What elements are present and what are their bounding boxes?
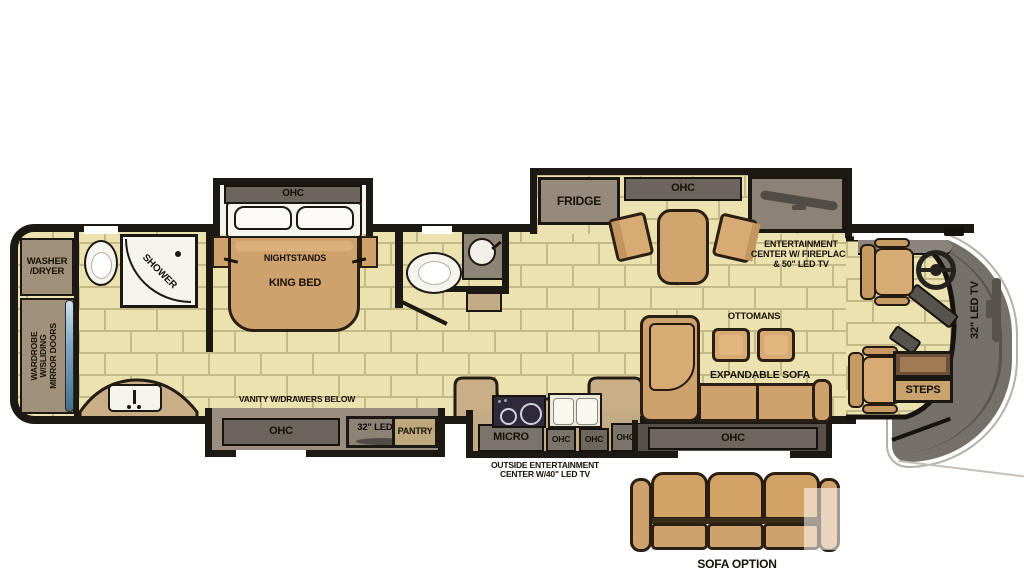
pantry: PANTRY <box>392 416 438 448</box>
sink-basin-right <box>576 398 598 425</box>
ohc-dinette-label: OHC <box>671 183 695 195</box>
front-tv-icon <box>992 278 1001 342</box>
ohc-sofa: OHC <box>648 427 818 450</box>
sofa-option <box>630 468 842 560</box>
ohc-kitchen-2: OHC <box>579 428 609 452</box>
ohc-vanity: OHC <box>222 418 340 446</box>
vanity-slideout: OHC 32" LED TV PANTRY <box>205 408 445 457</box>
sofa-option-highlight <box>804 488 858 550</box>
sofa-option-arm-left <box>630 478 652 552</box>
burner-small <box>500 408 517 425</box>
nightstand-left <box>212 236 230 268</box>
steering-wheel-icon <box>916 250 956 290</box>
fridge: FRIDGE <box>538 177 620 225</box>
pantry-label: PANTRY <box>398 427 433 437</box>
bath-sink <box>108 384 162 412</box>
wardrobe-label: WARDROBE W/SLIDING MIRROR DOORS <box>29 301 59 411</box>
rear-toilet <box>84 240 118 286</box>
steps-label: STEPS <box>905 385 940 397</box>
tv-50-base <box>792 205 806 210</box>
ottoman-2 <box>757 328 795 362</box>
sofa-slideout: OHC <box>632 420 832 458</box>
shower: SHOWER <box>120 234 198 308</box>
front-tv-mount <box>986 300 992 318</box>
burner-large <box>520 403 542 425</box>
roof-marker <box>944 226 964 236</box>
king-bed-label: KING BED <box>245 277 345 290</box>
sofa-slide-window <box>678 451 790 458</box>
sofa-armrest <box>812 379 832 423</box>
outside-entertainment-label: OUTSIDE ENTERTAINMENT CENTER W/40" LED T… <box>478 458 612 482</box>
pillow-left <box>234 206 292 230</box>
ohc-kitchen-1-label: OHC <box>552 435 570 444</box>
vanity-label: VANITY W/DRAWERS BELOW <box>217 394 377 405</box>
front-tv-label: 32" LED TV <box>969 260 983 360</box>
sofa-option-label: SOFA OPTION <box>672 557 802 572</box>
ohc-dinette: OHC <box>624 177 742 201</box>
steps: STEPS <box>893 378 953 403</box>
sofa-option-seat-2 <box>707 523 764 550</box>
nightstand-right <box>360 236 378 268</box>
corner-sink-cabinet <box>462 232 504 280</box>
washer-dryer: WASHER /DRYER <box>20 238 74 296</box>
mirror-doors <box>65 300 74 412</box>
bedroom-midbath-wall <box>395 230 403 308</box>
mid-toilet <box>406 252 462 294</box>
sofa-option-back-2 <box>707 472 764 520</box>
nightstands-label: NIGHTSTANDS <box>235 253 355 264</box>
entertainment-label: ENTERTAINMENT CENTER W/ FIREPLACE & 50" … <box>742 237 860 273</box>
entertainment-center <box>748 175 846 233</box>
ottomans-label: OTTOMANS <box>712 312 796 323</box>
sink-basin-left <box>553 398 574 425</box>
micro-label: MICRO <box>493 432 529 444</box>
cooktop <box>492 395 546 428</box>
ohc-vanity-label: OHC <box>269 426 293 438</box>
driver-seat <box>860 238 916 308</box>
microwave-cabinet: MICRO <box>478 424 544 452</box>
corner-sink <box>468 238 496 266</box>
ohc-sofa-label: OHC <box>721 433 745 445</box>
sofa-seats <box>698 383 816 422</box>
ottoman-1 <box>712 328 750 362</box>
kitchen-sink <box>548 393 602 428</box>
sofa-option-back-1 <box>651 472 708 520</box>
washer-label-2: /DRYER <box>27 267 68 277</box>
corner-sink-base <box>466 292 502 312</box>
window-rear-bath <box>84 226 118 234</box>
pillow-right <box>296 206 354 230</box>
sofa-option-seat-1 <box>651 523 708 550</box>
ohc-kitchen-1: OHC <box>546 428 576 452</box>
steps-well <box>893 351 953 378</box>
shower-head <box>175 251 181 257</box>
dinette-table <box>657 209 709 285</box>
rv-floorplan: OHC FRIDGE OHC OHC 32" LED <box>0 0 1024 584</box>
fridge-label: FRIDGE <box>557 195 601 208</box>
ohc-bedroom-label: OHC <box>282 189 304 200</box>
ohc-kitchen-2-label: OHC <box>585 435 603 444</box>
vanity-slide-window <box>236 450 306 457</box>
window-mid <box>422 226 452 234</box>
expandable-sofa-label: EXPANDABLE SOFA <box>690 369 830 382</box>
